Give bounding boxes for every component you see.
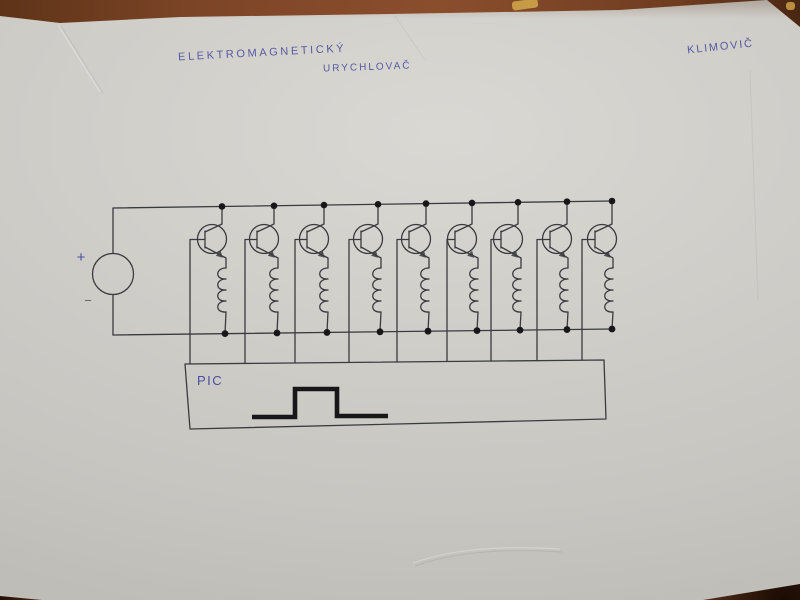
junction-dot	[271, 202, 278, 209]
paper-sheet: ELEKTROMAGNETICKÝ URYCHLOVAČ KLIMOVIČ + …	[0, 0, 800, 600]
transistor-stage	[397, 200, 431, 362]
junction-dot	[609, 326, 616, 333]
base-wire	[582, 240, 595, 361]
pic-box	[185, 360, 606, 429]
paper-crease	[750, 70, 758, 300]
base-wire	[447, 240, 455, 362]
junction-dot	[219, 203, 226, 210]
collector-wire	[550, 202, 567, 232]
coil-symbol	[513, 268, 521, 312]
collector-wire	[307, 205, 324, 232]
emitter-wire	[205, 247, 226, 268]
collector-wire	[257, 206, 274, 232]
junction-dot	[515, 199, 522, 206]
junction-dot	[564, 326, 571, 333]
base-wire	[295, 240, 307, 363]
emitter-wire	[257, 247, 278, 268]
paper-crease	[413, 548, 560, 563]
circuit-schematic: + − PIC	[0, 0, 800, 600]
junction-dot	[321, 202, 328, 209]
junction-dot	[375, 201, 382, 208]
collector-wire	[205, 206, 222, 232]
coil-symbol	[421, 268, 429, 312]
base-wire	[190, 240, 205, 364]
coil-symbol	[470, 268, 478, 312]
top-rail	[113, 201, 612, 208]
junction-dot	[222, 330, 229, 337]
wood-debris	[786, 2, 795, 10]
base-wire	[491, 240, 501, 362]
junction-dot	[377, 328, 384, 335]
base-wire	[245, 240, 257, 364]
collector-wire	[595, 201, 612, 232]
transistor-stage	[582, 198, 617, 361]
junction-dot	[564, 198, 571, 205]
minus-label: −	[84, 293, 92, 308]
collector-wire	[455, 203, 472, 232]
transistor-stage	[491, 199, 523, 361]
junction-dot	[517, 327, 524, 334]
base-wire	[397, 240, 409, 362]
coil-symbol	[270, 268, 278, 312]
emitter-wire	[455, 247, 478, 268]
base-wire	[537, 240, 550, 361]
transistor-stage	[190, 203, 228, 364]
junction-dot	[324, 329, 331, 336]
junction-dot	[469, 200, 476, 207]
transistor-stage	[245, 202, 280, 363]
coil-symbol	[218, 268, 226, 312]
junction-dot	[423, 200, 430, 207]
collector-wire	[501, 202, 518, 232]
junction-dot	[274, 330, 281, 337]
transistor-stage	[537, 198, 572, 360]
transistor-stage	[447, 200, 480, 362]
coil-symbol	[560, 268, 568, 312]
base-wire	[349, 240, 361, 363]
transistor-stage	[295, 202, 330, 363]
transistor-stage	[349, 201, 383, 362]
junction-dot	[609, 198, 616, 205]
coil-symbol	[605, 268, 613, 312]
collector-wire	[409, 204, 426, 232]
coil-symbol	[320, 268, 328, 312]
paper-crease	[58, 25, 100, 92]
driver-stages	[190, 198, 617, 364]
plus-label: +	[77, 249, 86, 266]
pic-label: PIC	[197, 373, 223, 388]
pulse-waveform	[252, 389, 388, 417]
junction-dot	[474, 327, 481, 334]
paper-crease	[61, 26, 103, 93]
junction-dot	[425, 328, 432, 335]
paper-crease	[395, 16, 425, 60]
collector-wire	[361, 204, 378, 232]
power-source-symbol	[93, 254, 134, 295]
coil-symbol	[373, 268, 381, 312]
paper-crease	[415, 551, 562, 566]
emitter-wire	[307, 247, 328, 268]
